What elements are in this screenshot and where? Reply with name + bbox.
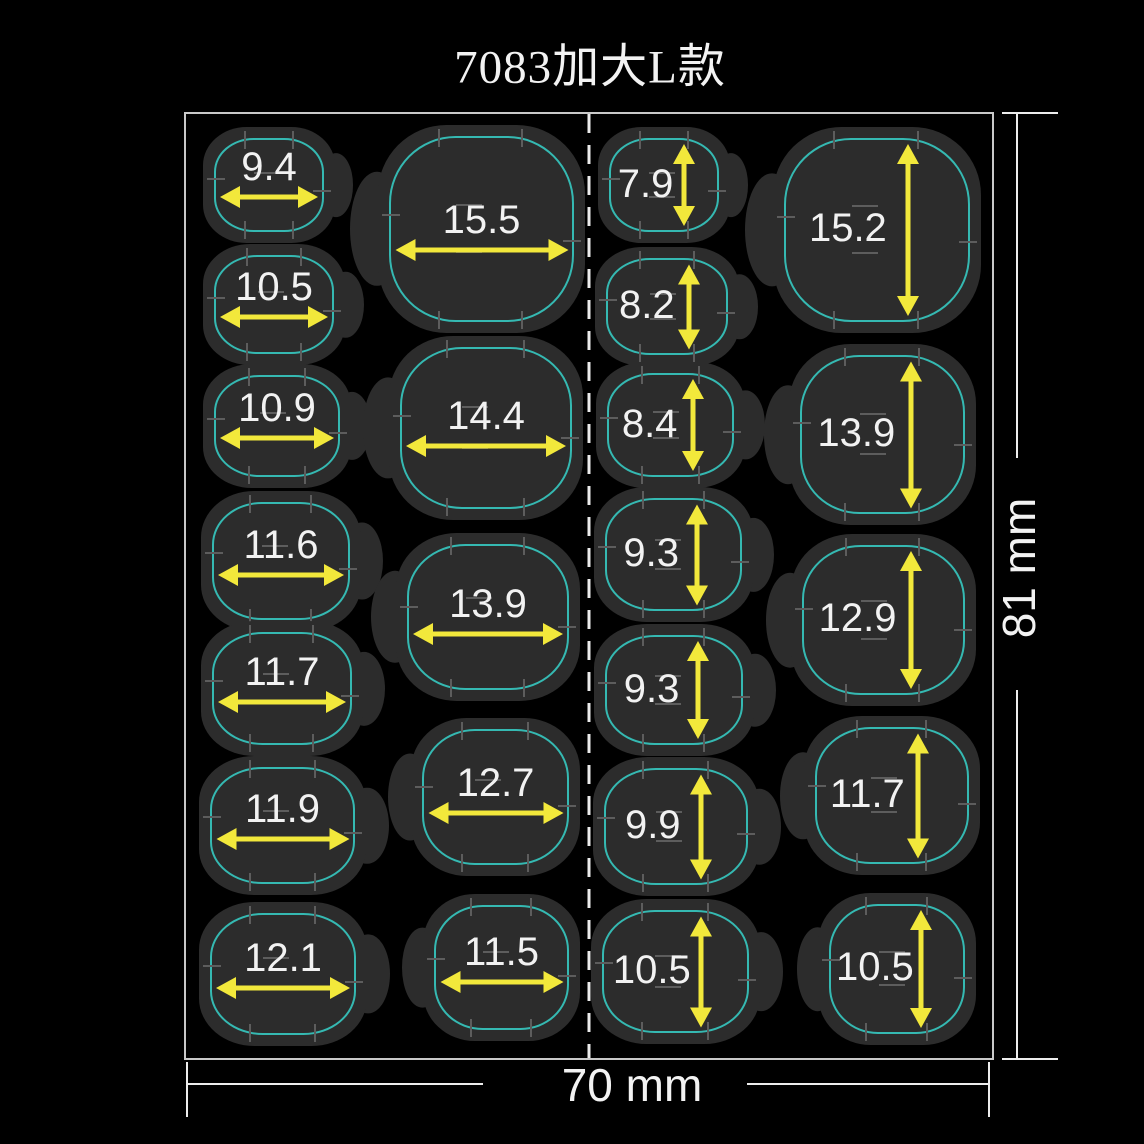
- registration-tick: [314, 760, 316, 778]
- registration-tick: [708, 190, 726, 192]
- arrow-shaft: [225, 436, 329, 441]
- registration-tick: [304, 368, 306, 386]
- registration-tick: [312, 734, 314, 752]
- registration-tick: [833, 311, 835, 329]
- sticker: 15.2: [773, 127, 981, 333]
- dimension-arrow: [690, 774, 712, 879]
- registration-tick: [639, 131, 641, 149]
- registration-tick: [438, 129, 440, 147]
- sticker-size-label: 15.2: [809, 208, 887, 248]
- registration-tick: [845, 684, 847, 702]
- sticker: 11.9: [199, 756, 366, 895]
- dimension-arrow: [682, 379, 704, 471]
- registration-tick: [300, 248, 302, 266]
- registration-tick: [393, 415, 411, 417]
- arrow-shaft: [698, 921, 703, 1022]
- registration-tick: [203, 816, 221, 818]
- registration-tick: [795, 608, 813, 610]
- registration-tick: [314, 906, 316, 924]
- registration-tick: [530, 1019, 532, 1037]
- registration-tick: [642, 600, 644, 618]
- registration-tick: [737, 833, 755, 835]
- dimension-arrow: [673, 144, 695, 226]
- dimension-arrow: [678, 264, 700, 349]
- registration-tick: [639, 251, 641, 269]
- arrow-shaft: [225, 194, 313, 199]
- registration-tick: [523, 498, 525, 516]
- dimension-end-tick: [988, 1062, 990, 1117]
- registration-tick: [450, 679, 452, 697]
- sticker-size-label: 14.4: [447, 396, 525, 436]
- sticker: 12.1: [199, 902, 367, 1046]
- registration-tick: [639, 221, 641, 239]
- registration-tick: [833, 131, 835, 149]
- registration-tick: [446, 498, 448, 516]
- registration-tick: [246, 343, 248, 361]
- arrow-shaft: [698, 779, 703, 874]
- arrow-shaft: [400, 247, 563, 252]
- registration-tick: [856, 720, 858, 738]
- registration-tick: [300, 343, 302, 361]
- sticker: 11.5: [423, 894, 580, 1041]
- registration-tick: [642, 628, 644, 646]
- dimension-arrow: [687, 641, 709, 739]
- arrow-shaft: [223, 700, 341, 705]
- registration-tick: [205, 680, 223, 682]
- registration-tick: [641, 366, 643, 384]
- sticker: 11.6: [201, 491, 361, 631]
- arrow-shaft: [681, 149, 686, 221]
- registration-tick: [310, 495, 312, 513]
- registration-tick: [523, 340, 525, 358]
- dimension-line: [1016, 690, 1018, 1060]
- registration-tick: [642, 734, 644, 752]
- dimension-arrow: [216, 828, 349, 850]
- registration-tick: [203, 965, 221, 967]
- sticker: 12.9: [791, 534, 976, 706]
- arrow-shaft: [445, 980, 558, 985]
- arrow-shaft: [916, 738, 921, 853]
- registration-tick: [249, 495, 251, 513]
- registration-tick: [865, 1023, 867, 1041]
- registration-tick: [642, 761, 644, 779]
- arrow-shaft: [223, 573, 339, 578]
- registration-tick: [527, 722, 529, 740]
- registration-tick: [244, 221, 246, 239]
- dimension-arrow: [406, 435, 566, 457]
- sticker: 11.7: [804, 716, 980, 875]
- arrow-shaft: [225, 314, 323, 319]
- sticker: 8.4: [596, 362, 745, 488]
- registration-tick: [844, 348, 846, 366]
- sticker: 10.5: [591, 899, 760, 1044]
- registration-tick: [856, 853, 858, 871]
- dimension-arrow: [900, 361, 922, 508]
- dimension-arrow: [220, 427, 334, 449]
- dimension-arrow: [897, 144, 919, 316]
- registration-tick: [249, 906, 251, 924]
- registration-tick: [521, 129, 523, 147]
- registration-tick: [958, 803, 976, 805]
- sticker-size-label: 11.7: [245, 652, 320, 692]
- registration-tick: [314, 873, 316, 891]
- dimension-line: [747, 1083, 988, 1085]
- registration-tick: [446, 340, 448, 358]
- sticker: 10.9: [203, 364, 351, 488]
- arrow-shaft: [411, 444, 561, 449]
- registration-tick: [639, 344, 641, 362]
- registration-tick: [427, 958, 445, 960]
- sticker-size-label: 9.3: [624, 669, 680, 709]
- registration-tick: [954, 629, 972, 631]
- registration-tick: [400, 606, 418, 608]
- sticker-size-label: 12.7: [457, 763, 535, 803]
- sticker-size-label: 10.5: [613, 950, 691, 990]
- registration-tick: [717, 312, 735, 314]
- sticker-size-label: 7.9: [618, 164, 674, 204]
- registration-tick: [598, 682, 616, 684]
- sticker-size-label: 10.9: [238, 388, 316, 428]
- dimension-end-tick: [1002, 112, 1058, 114]
- sticker: 9.3: [594, 487, 753, 622]
- registration-tick: [382, 214, 400, 216]
- registration-tick: [777, 216, 795, 218]
- registration-tick: [595, 962, 613, 964]
- arrow-shaft: [906, 149, 911, 311]
- arrow-shaft: [686, 269, 691, 344]
- dimension-arrow: [218, 564, 344, 586]
- dimension-end-tick: [186, 1062, 188, 1117]
- registration-dash: [852, 252, 878, 254]
- registration-tick: [248, 466, 250, 484]
- dimension-arrow: [216, 977, 350, 999]
- arrow-shaft: [695, 509, 700, 600]
- registration-tick: [461, 722, 463, 740]
- registration-tick: [954, 977, 972, 979]
- dimension-line: [187, 1083, 483, 1085]
- registration-tick: [461, 854, 463, 872]
- arrow-shaft: [221, 837, 344, 842]
- registration-tick: [521, 311, 523, 329]
- registration-tick: [642, 874, 644, 892]
- registration-tick: [470, 1019, 472, 1037]
- sticker-size-label: 11.7: [830, 774, 905, 814]
- registration-tick: [207, 178, 225, 180]
- registration-tick: [865, 897, 867, 915]
- width-dimension: 70 mm: [184, 1060, 990, 1130]
- height-dimension-label: 81 mm: [992, 498, 1046, 639]
- sticker-sheet: 9.4 10.5: [184, 112, 994, 1060]
- registration-tick: [415, 786, 433, 788]
- sticker: 12.7: [411, 718, 580, 876]
- arrow-shaft: [221, 986, 345, 991]
- arrow-shaft: [918, 915, 923, 1023]
- page-title: 7083加大L款: [454, 28, 726, 97]
- registration-tick: [844, 503, 846, 521]
- dimension-arrow: [220, 186, 318, 208]
- sticker-size-label: 11.6: [244, 525, 319, 565]
- registration-tick: [523, 679, 525, 697]
- sticker-size-label: 15.5: [443, 200, 521, 240]
- dimension-end-tick: [1002, 1058, 1058, 1060]
- registration-tick: [530, 898, 532, 916]
- registration-tick: [845, 538, 847, 556]
- registration-tick: [249, 873, 251, 891]
- registration-tick: [249, 760, 251, 778]
- registration-tick: [207, 418, 225, 420]
- dimension-arrow: [428, 802, 563, 824]
- registration-tick: [732, 696, 750, 698]
- sticker-size-label: 10.5: [235, 267, 313, 307]
- registration-tick: [598, 546, 616, 548]
- registration-tick: [793, 422, 811, 424]
- registration-tick: [642, 491, 644, 509]
- dimension-arrow: [900, 551, 922, 689]
- sticker-size-label: 9.3: [623, 533, 679, 573]
- registration-tick: [597, 817, 615, 819]
- registration-tick: [314, 1024, 316, 1042]
- dimension-arrow: [413, 623, 563, 645]
- sticker: 10.5: [203, 244, 345, 365]
- registration-tick: [304, 466, 306, 484]
- sticker-size-label: 11.9: [245, 789, 320, 829]
- dimension-arrow: [395, 239, 568, 261]
- sticker: 14.4: [389, 336, 583, 520]
- sticker-size-label: 12.9: [819, 598, 897, 638]
- registration-tick: [641, 466, 643, 484]
- dimension-line: [1016, 112, 1018, 458]
- sticker-size-label: 13.9: [817, 413, 895, 453]
- registration-tick: [450, 537, 452, 555]
- registration-tick: [470, 898, 472, 916]
- registration-tick: [954, 444, 972, 446]
- sticker-size-label: 10.5: [836, 947, 914, 987]
- registration-tick: [599, 299, 617, 301]
- registration-tick: [312, 625, 314, 643]
- sticker-size-label: 12.1: [244, 938, 322, 978]
- registration-tick: [600, 417, 618, 419]
- registration-tick: [249, 734, 251, 752]
- dimension-arrow: [907, 733, 929, 858]
- registration-tick: [641, 1022, 643, 1040]
- arrow-shaft: [418, 631, 558, 636]
- registration-tick: [523, 537, 525, 555]
- sticker-size-label: 13.9: [449, 584, 527, 624]
- width-dimension-label: 70 mm: [562, 1058, 703, 1112]
- height-dimension: 81 mm: [1002, 112, 1062, 1060]
- registration-tick: [292, 221, 294, 239]
- sticker-size-label: 8.4: [622, 404, 678, 444]
- registration-tick: [249, 625, 251, 643]
- sticker: 13.9: [789, 344, 976, 525]
- registration-tick: [438, 311, 440, 329]
- registration-tick: [527, 854, 529, 872]
- sticker: 15.5: [378, 125, 585, 333]
- registration-tick: [249, 1024, 251, 1042]
- registration-tick: [731, 561, 749, 563]
- arrow-shaft: [690, 384, 695, 466]
- registration-tick: [207, 297, 225, 299]
- sticker: 9.3: [594, 624, 754, 756]
- registration-tick: [246, 248, 248, 266]
- sticker-size-label: 8.2: [619, 285, 675, 325]
- sticker: 8.2: [595, 247, 739, 366]
- sticker: 9.4: [203, 127, 335, 243]
- registration-tick: [808, 785, 826, 787]
- sticker-size-label: 11.5: [464, 932, 539, 972]
- arrow-shaft: [696, 646, 701, 734]
- arrow-shaft: [909, 556, 914, 684]
- registration-tick: [205, 552, 223, 554]
- sticker-size-label: 9.4: [241, 147, 297, 187]
- sticker: 10.5: [818, 893, 976, 1045]
- arrow-shaft: [433, 810, 558, 815]
- dimension-arrow: [220, 306, 328, 328]
- registration-tick: [959, 241, 977, 243]
- registration-tick: [248, 368, 250, 386]
- registration-tick: [738, 979, 756, 981]
- dimension-arrow: [440, 971, 563, 993]
- registration-tick: [723, 431, 741, 433]
- sticker-size-label: 9.9: [625, 805, 681, 845]
- sticker: 11.7: [201, 621, 363, 756]
- dimension-arrow: [686, 504, 708, 605]
- sticker: 13.9: [396, 533, 580, 701]
- sticker: 9.9: [593, 757, 759, 896]
- registration-tick: [641, 903, 643, 921]
- arrow-shaft: [908, 366, 913, 503]
- sticker: 7.9: [598, 127, 730, 243]
- dimension-arrow: [690, 916, 712, 1027]
- dimension-arrow: [218, 691, 346, 713]
